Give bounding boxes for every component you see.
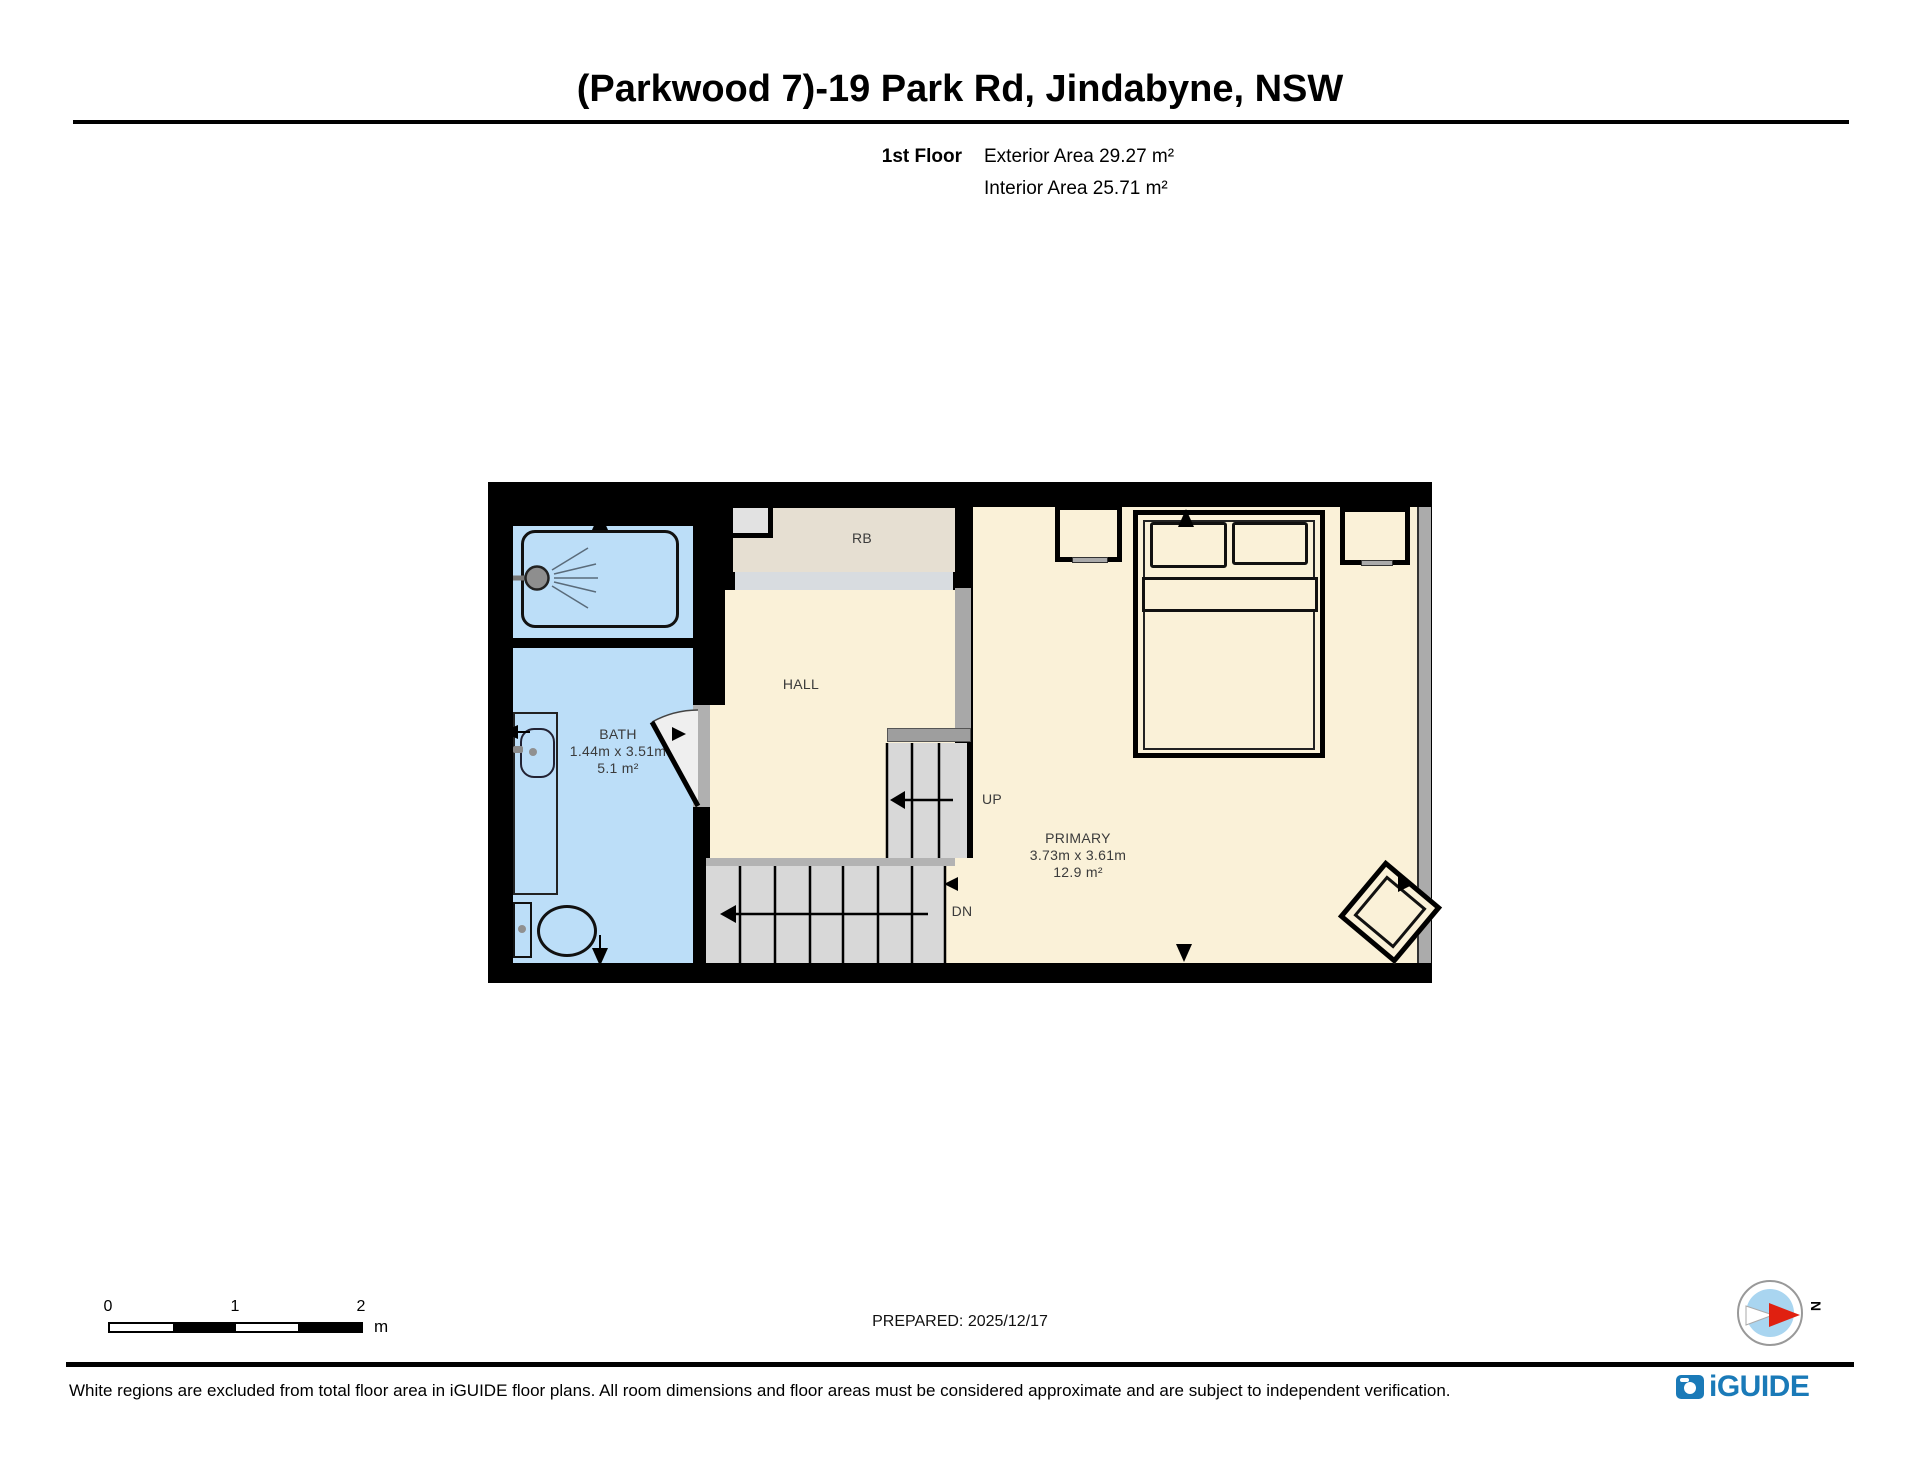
room-dimensions: 1.44m x 3.51m [538, 743, 698, 760]
stairs-down-flight [706, 866, 945, 963]
pillow [1232, 522, 1308, 565]
camera-slot-icon [1680, 1378, 1689, 1382]
toilet-button-icon [518, 925, 526, 933]
floorplan-canvas: BATH 1.44m x 3.51m 5.1 m² HALL RB UP DN … [488, 482, 1432, 983]
bed [1133, 510, 1325, 758]
iguide-logo: iGUIDE [1676, 1370, 1809, 1404]
stair-railing-wall [887, 728, 971, 742]
toilet-bowl [537, 905, 597, 957]
robe-label: RB [822, 530, 902, 547]
sink-drain-icon [529, 748, 537, 756]
camera-lens-icon [1684, 1382, 1696, 1394]
blanket-fold [1142, 577, 1318, 612]
stairs-up-label: UP [972, 791, 1012, 808]
room-dimensions: 3.73m x 3.61m [988, 847, 1168, 864]
floor-label: 1st Floor [742, 146, 962, 168]
pillow [1150, 522, 1227, 568]
robe-niche [733, 508, 773, 538]
footer-divider [66, 1362, 1854, 1367]
stairs-down-label: DN [942, 903, 982, 920]
room-area: 5.1 m² [538, 760, 698, 777]
bath-room-label: BATH 1.44m x 3.51m 5.1 m² [538, 726, 698, 777]
brand-name: iGUIDE [1709, 1370, 1809, 1404]
shower-room-floor [513, 526, 693, 638]
hall-wall [710, 590, 725, 705]
stair-landing-edge [706, 858, 955, 866]
page-title: (Parkwood 7)-19 Park Rd, Jindabyne, NSW [0, 68, 1920, 111]
compass-icon [1737, 1280, 1803, 1346]
nightstand-left [1055, 505, 1122, 562]
room-name: PRIMARY [988, 830, 1168, 847]
floorplan-page: (Parkwood 7)-19 Park Rd, Jindabyne, NSW … [0, 0, 1920, 1484]
disclaimer-text: White regions are excluded from total fl… [69, 1381, 1569, 1401]
room-area: 12.9 m² [988, 864, 1168, 881]
title-divider [73, 120, 1849, 124]
compass-north-label: N [1808, 1301, 1824, 1321]
bath-room-floor [513, 648, 693, 963]
nightstand-handle [1361, 560, 1393, 566]
room-name: BATH [538, 726, 698, 743]
hall-primary-opening [955, 588, 971, 728]
robe-sliding-door [735, 572, 953, 590]
hall-room-label: HALL [761, 676, 841, 693]
nightstand-handle [1072, 557, 1108, 563]
shower-tray [521, 530, 679, 628]
stairs-up-flight [887, 743, 967, 858]
faucet-icon [513, 746, 523, 753]
compass-needle-icon [1739, 1282, 1805, 1348]
interior-area-text: Interior Area 25.71 m² [984, 178, 1404, 200]
nightstand-right [1340, 507, 1410, 565]
chair-seat-outline [1353, 875, 1426, 948]
primary-room-label: PRIMARY 3.73m x 3.61m 12.9 m² [988, 830, 1168, 881]
camera-icon [1676, 1375, 1704, 1399]
prepared-date: PREPARED: 2025/12/17 [0, 1313, 1920, 1331]
exterior-area-text: Exterior Area 29.27 m² [984, 146, 1404, 168]
